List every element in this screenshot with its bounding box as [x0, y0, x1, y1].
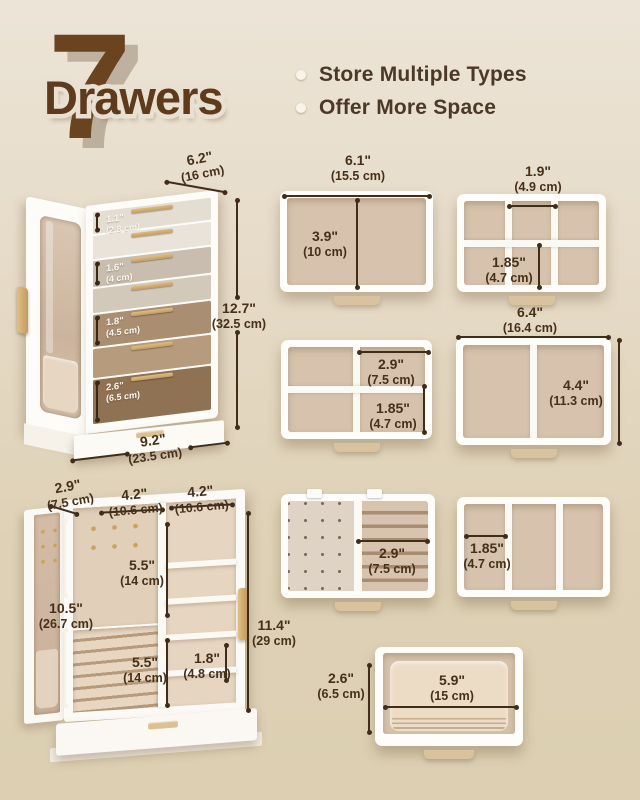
box1-depth-label: 6.2"(16 cm): [164, 144, 239, 188]
product-infographic: 7 7 Drawers Drawers Store Multiple Types…: [0, 0, 640, 800]
box1-side-handle: [17, 286, 28, 334]
tray-open-depth-label: 3.9"(10 cm): [296, 228, 354, 259]
box2-leftwidth-label: 4.2"(10.6 cm): [104, 483, 166, 519]
drawer-7-size: 2.6"(6.5 cm): [106, 378, 140, 404]
box2-interiorheight-label: 10.5"(26.7 cm): [38, 600, 94, 631]
tray-six-cellheight-label: 1.85"(4.7 cm): [480, 254, 538, 285]
tray-two-width-label: 6.4"(16.4 cm): [492, 304, 568, 335]
feature-bullet-2: Offer More Space: [296, 96, 527, 120]
tray-four-handle: [334, 443, 380, 452]
tray-open-depth-arrow: [356, 200, 358, 288]
clip: [307, 489, 322, 498]
drawer-7-bracket: [96, 382, 98, 422]
drawer-3-size: 1.6"(4 cm): [106, 260, 133, 285]
door-pouch: [36, 649, 58, 709]
glass-reflection: [46, 220, 53, 353]
shelf: [166, 558, 236, 568]
tray-two-width-arrow: [458, 336, 609, 338]
drawer-handle: [131, 341, 173, 350]
box2-interiorheight-arrow-top: [64, 520, 66, 596]
tray-three-cellwidth-arrow: [466, 535, 506, 537]
shelf: [166, 594, 236, 604]
divider: [556, 504, 563, 590]
tray-two-handle: [511, 449, 557, 458]
feature-bullet-1: Store Multiple Types: [296, 63, 527, 87]
door-hooks: [37, 523, 57, 569]
box2-rollheight-label: 5.5"(14 cm): [117, 654, 173, 685]
drawer-handle: [131, 253, 173, 262]
drawer-5-bracket: [96, 317, 98, 345]
tray-earring-handle: [335, 602, 381, 611]
shelf: [166, 630, 236, 640]
tray-open-handle: [334, 296, 380, 305]
tray-four-cellwidth-arrow: [359, 351, 429, 353]
tray-deep-handle: [424, 750, 474, 759]
box1-height-arrow-top: [236, 200, 238, 298]
feature-text: Store Multiple Types: [319, 63, 527, 87]
bullet-dot-icon: [296, 103, 306, 113]
drawer-handle: [131, 228, 173, 237]
tray-open-width-label: 6.1"(15.5 cm): [320, 152, 396, 183]
necklace-hooks: [83, 516, 148, 558]
box1-side-pouch: [43, 355, 78, 414]
page-title: Drawers: [44, 74, 223, 121]
tray-four-cellheight-arrow: [423, 386, 425, 433]
feature-bullets: Store Multiple Types Offer More Space: [296, 63, 527, 120]
drawer-1-bracket: [96, 214, 98, 232]
divider: [464, 240, 599, 247]
box1-height-arrow-bottom: [236, 332, 238, 428]
tray-four-cellheight-label: 1.85"(4.7 cm): [364, 400, 422, 431]
box1-front-face: 1.1"(2.8 cm) 1.6"(4 cm) 1.8"(4.5 cm): [86, 190, 218, 434]
tray-four-cellwidth-label: 2.9"(7.5 cm): [362, 356, 420, 387]
tray-two-depth-arrow: [618, 340, 620, 444]
tray-three-handle: [511, 601, 557, 610]
box1-height-label: 12.7"(32.5 cm): [208, 300, 270, 331]
tray-deep-width-label: 5.9"(15 cm): [422, 672, 482, 703]
tray-deep-width-arrow: [385, 706, 517, 708]
bullet-dot-icon: [296, 70, 306, 80]
drawer-5-size: 1.8"(4.5 cm): [106, 313, 140, 339]
drawer-3-bracket: [96, 263, 98, 285]
divider: [354, 501, 362, 591]
box2-rightwidth-label: 4.2"(10.6 cm): [169, 480, 233, 517]
box1-side-panel: [26, 196, 88, 445]
tray-six-cellwidth-arrow: [509, 205, 556, 207]
tray-six-cellwidth-label: 1.9"(4.9 cm): [500, 163, 576, 194]
tray-open-width-arrow: [284, 195, 430, 197]
box1-side-window: [40, 215, 81, 420]
brand-tag: [148, 720, 178, 729]
feature-text: Offer More Space: [319, 96, 496, 120]
tray-deep-height-label: 2.6"(6.5 cm): [312, 670, 370, 701]
tray-earring-rollwidth-arrow: [358, 540, 428, 542]
box2-totalheight-arrow: [247, 513, 249, 711]
drawer-handle: [131, 281, 173, 290]
tray-three-cellwidth-label: 1.85"(4.7 cm): [458, 540, 516, 571]
box2-interiorheight-arrow-bottom: [64, 630, 66, 706]
box2-shelfgap-label: 1.8"(4.8 cm): [178, 650, 236, 681]
box2-totalheight-label: 11.4"(29 cm): [250, 617, 298, 648]
box2-hangheight-label: 5.5"(14 cm): [114, 557, 170, 588]
box1-drawer-stack: 1.1"(2.8 cm) 1.6"(4 cm) 1.8"(4.5 cm): [93, 198, 211, 424]
tray-two-depth-label: 4.4"(11.3 cm): [546, 377, 606, 408]
tray-earring-rollwidth-label: 2.9"(7.5 cm): [363, 545, 421, 576]
divider: [530, 345, 537, 438]
clip: [367, 489, 382, 498]
earring-hole-plate: [288, 501, 354, 591]
tray-six-cellheight-arrow: [538, 245, 540, 288]
box2-side-handle: [238, 588, 247, 641]
